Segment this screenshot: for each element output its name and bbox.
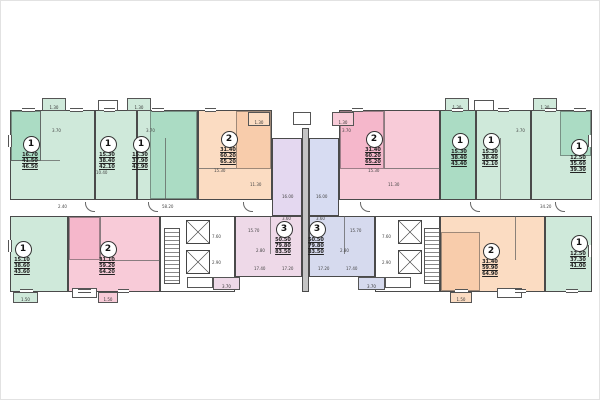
interior-wall bbox=[515, 216, 516, 260]
interior-wall bbox=[500, 138, 501, 200]
dimension-label: 3.70 bbox=[52, 128, 61, 133]
balcony-label: 1.30 bbox=[339, 120, 348, 125]
dimension-label: 15.70 bbox=[248, 228, 259, 233]
window bbox=[8, 240, 12, 252]
balcony-label: 3.70 bbox=[222, 284, 231, 289]
apartment-type-badge: 3 bbox=[276, 221, 293, 238]
apartment-type: 2 bbox=[105, 244, 111, 254]
window bbox=[566, 289, 578, 293]
window bbox=[352, 108, 363, 112]
apartment-type: 1 bbox=[457, 136, 463, 146]
dimension-label: 7.60 bbox=[212, 234, 221, 239]
dimension-label: 11.30 bbox=[250, 182, 261, 187]
dimension-label: 2.90 bbox=[212, 260, 221, 265]
apartment-type-badge: 2 bbox=[366, 131, 383, 148]
balcony: 1.30 bbox=[332, 112, 354, 126]
apartment-type: 1 bbox=[576, 142, 582, 152]
balcony-label: 1.50 bbox=[457, 297, 466, 302]
dimension-label: 7.60 bbox=[382, 234, 391, 239]
apartment-areas: 50.5079.8083.50 bbox=[302, 237, 330, 255]
room-overlay bbox=[150, 111, 197, 199]
apartment-type-badge: 1 bbox=[571, 139, 588, 156]
window bbox=[545, 108, 556, 112]
apartment-type-badge: 2 bbox=[221, 131, 238, 148]
apartment-type-badge: 3 bbox=[309, 221, 326, 238]
dimension-label: 15.30 bbox=[214, 168, 225, 173]
apartment-areas: 12.5037.3041.00 bbox=[564, 251, 592, 269]
apartment-type-badge: 1 bbox=[571, 235, 588, 252]
dimension-label: 3.60 bbox=[316, 216, 325, 221]
ledge bbox=[187, 277, 213, 288]
window bbox=[22, 108, 35, 112]
balcony-label: 3.70 bbox=[367, 284, 376, 289]
apartment-type: 2 bbox=[488, 246, 494, 256]
apartment-type: 1 bbox=[138, 139, 144, 149]
balcony: 1.50 bbox=[13, 292, 38, 303]
balcony: 1.30 bbox=[42, 98, 66, 111]
dimension-label: 15.30 bbox=[368, 168, 379, 173]
interior-wall bbox=[384, 168, 440, 169]
dimension-label: 17.20 bbox=[318, 266, 329, 271]
apartment-areas: 15.3038.4043.40 bbox=[445, 149, 473, 167]
apartment-areas: 15.3037.9042.90 bbox=[126, 152, 154, 170]
apartment-type-badge: 1 bbox=[23, 136, 40, 153]
door-swing bbox=[85, 202, 95, 212]
apartment-type: 1 bbox=[488, 136, 494, 146]
apartment-type-badge: 1 bbox=[15, 241, 32, 258]
ledge bbox=[385, 277, 411, 288]
balcony-label: 1.30 bbox=[50, 105, 59, 110]
balcony-label: 1.50 bbox=[21, 297, 30, 302]
apartment-areas: 31.4060.2065.20 bbox=[214, 147, 242, 165]
balcony: 3.70 bbox=[213, 277, 240, 290]
apartment-areas: 31.1059.2064.20 bbox=[93, 257, 121, 275]
apartment-room bbox=[309, 138, 339, 216]
apartment-type: 1 bbox=[105, 139, 111, 149]
balcony: 1.50 bbox=[450, 292, 472, 303]
apartment-areas: 15.1038.6043.60 bbox=[8, 257, 36, 275]
apartment-type: 3 bbox=[314, 224, 320, 234]
dimension-label: 2.80 bbox=[256, 248, 265, 253]
elevator-shaft bbox=[398, 220, 422, 244]
elevator-shaft bbox=[186, 220, 210, 244]
elevator-shaft bbox=[398, 250, 422, 274]
apartment-type: 3 bbox=[281, 224, 287, 234]
dimension-label: 15.70 bbox=[350, 228, 361, 233]
door-swing bbox=[148, 202, 158, 212]
expansion-joint bbox=[302, 128, 309, 292]
dimension-label: 17.40 bbox=[346, 266, 357, 271]
apartment-type-badge: 1 bbox=[133, 136, 150, 153]
window bbox=[498, 108, 509, 112]
window bbox=[152, 108, 164, 112]
apartment-type: 1 bbox=[20, 244, 26, 254]
staircase bbox=[164, 228, 180, 284]
apartment-type-badge: 1 bbox=[452, 133, 469, 150]
balcony-label: 1.50 bbox=[104, 297, 113, 302]
apartment-type-badge: 2 bbox=[483, 243, 500, 260]
dimension-label: 16.00 bbox=[316, 194, 327, 199]
apartment-type: 1 bbox=[28, 139, 34, 149]
apartment-type: 1 bbox=[576, 238, 582, 248]
apartment-room bbox=[272, 138, 302, 216]
staircase bbox=[424, 228, 440, 284]
dimension-label: 10.40 bbox=[96, 170, 107, 175]
dimension-label: 3.60 bbox=[282, 216, 291, 221]
dimension-label: 3.70 bbox=[516, 128, 525, 133]
apartment-type-badge: 2 bbox=[100, 241, 117, 258]
dimension-label: 3.70 bbox=[342, 128, 351, 133]
apartment-areas: 16.7041.5046.50 bbox=[16, 152, 44, 170]
window bbox=[205, 108, 216, 112]
balcony: 1.30 bbox=[127, 98, 151, 111]
ledge bbox=[474, 100, 494, 111]
apartment-type: 2 bbox=[226, 134, 232, 144]
dimension-label: 2.90 bbox=[382, 260, 391, 265]
window bbox=[118, 289, 129, 293]
room-overlay bbox=[69, 217, 100, 260]
dimension-label: 2.80 bbox=[340, 248, 349, 253]
door-swing bbox=[555, 202, 565, 212]
balcony: 3.70 bbox=[358, 277, 385, 290]
apartment-type: 2 bbox=[371, 134, 377, 144]
balcony-label: 1.30 bbox=[255, 120, 264, 125]
apartment-areas: 15.3038.4042.10 bbox=[93, 152, 121, 170]
apartment-areas: 12.5035.6039.30 bbox=[564, 155, 592, 173]
elevator-shaft bbox=[186, 250, 210, 274]
room-overlay bbox=[441, 232, 480, 291]
interior-wall bbox=[165, 138, 166, 200]
window bbox=[588, 135, 592, 147]
door-swing bbox=[243, 202, 253, 212]
window bbox=[452, 108, 463, 112]
balcony: 1.30 bbox=[248, 112, 270, 126]
door-swing bbox=[360, 202, 370, 212]
apartment-areas: 15.3038.4042.10 bbox=[476, 149, 504, 167]
dimension-label: 2.40 bbox=[58, 204, 67, 209]
apartment-areas: 31.4059.9064.90 bbox=[476, 259, 504, 277]
apartment-type-badge: 1 bbox=[100, 136, 117, 153]
apartment-type-badge: 1 bbox=[483, 133, 500, 150]
dimension-label: 16.00 bbox=[282, 194, 293, 199]
apartment-areas: 50.5079.8083.50 bbox=[269, 237, 297, 255]
dimension-label: 34.20 bbox=[540, 204, 551, 209]
dimension-label: 3.70 bbox=[146, 128, 155, 133]
dimension-label: 58.20 bbox=[162, 204, 173, 209]
window bbox=[20, 289, 33, 293]
window bbox=[455, 289, 468, 293]
window bbox=[574, 108, 586, 112]
window bbox=[8, 135, 12, 147]
apartment-areas: 31.4060.2065.20 bbox=[359, 147, 387, 165]
balcony-label: 1.30 bbox=[135, 105, 144, 110]
window bbox=[104, 108, 115, 112]
ledge bbox=[293, 112, 311, 125]
window bbox=[70, 108, 83, 112]
dimension-label: 17.40 bbox=[254, 266, 265, 271]
balcony: 1.50 bbox=[98, 292, 118, 303]
window bbox=[78, 289, 91, 293]
dimension-label: 11.30 bbox=[388, 182, 399, 187]
dimension-label: 17.20 bbox=[282, 266, 293, 271]
floor-plan: 1.30 1.30 1.30 1.30 1.30 1.30 1.50 1.50 … bbox=[0, 0, 600, 400]
window bbox=[515, 289, 526, 293]
door-swing bbox=[470, 202, 480, 212]
